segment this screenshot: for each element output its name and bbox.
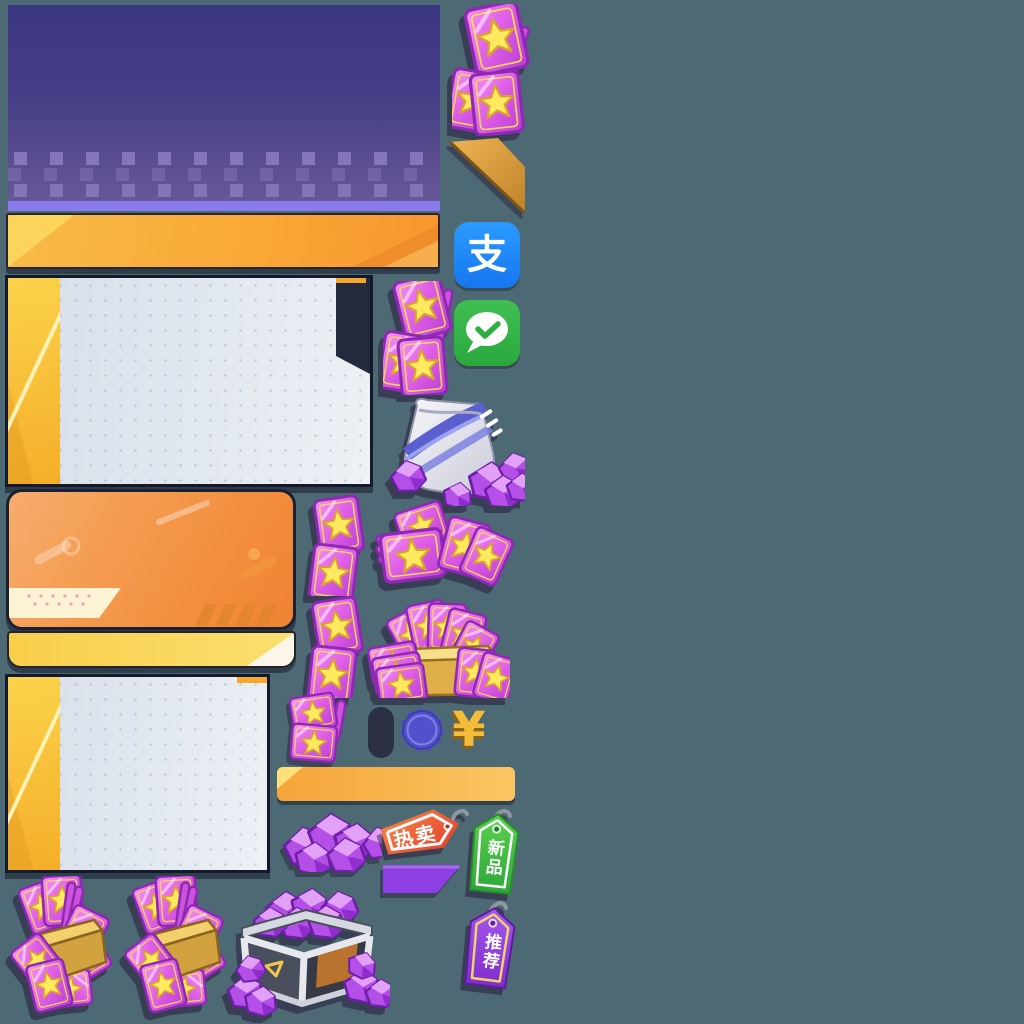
ticket-pile-icon <box>372 498 514 598</box>
alipay-icon[interactable]: 支 <box>454 222 520 288</box>
recommend-tag: 推荐 <box>458 892 524 996</box>
wechat-pay-icon[interactable] <box>454 300 520 366</box>
sale-card-decor <box>9 492 293 627</box>
yuan-symbol: ¥ <box>448 703 490 757</box>
card-yellow-stripe <box>8 278 60 484</box>
sprite-atlas-canvas: 支 <box>0 0 1024 1024</box>
wechat-bubble-icon <box>454 300 520 366</box>
indigo-coin-icon <box>400 705 446 755</box>
yellow-bar-triangle <box>9 633 294 666</box>
orange-banner-button <box>6 213 440 269</box>
promo-panel-lavender-strip <box>8 201 440 211</box>
gem-pouch-icon <box>383 396 525 506</box>
orange-bar-corner <box>277 767 307 791</box>
orange-bar-button <box>277 767 515 801</box>
card-corner-notch <box>336 278 370 378</box>
sale-card-orange <box>6 489 296 630</box>
hot-sale-tag: 热卖 <box>379 806 471 868</box>
card-top-tab <box>237 677 267 683</box>
new-item-tag: 新品 <box>464 804 526 900</box>
alipay-glyph: 支 <box>467 235 507 275</box>
gem-crate-icon <box>226 884 390 1016</box>
banner-corner-decor <box>8 215 438 267</box>
promo-banner-panel <box>8 5 440 202</box>
gold-corner-ribbon-icon <box>448 136 528 218</box>
ticket-bundle-icon <box>6 876 126 1018</box>
new-item-tag-label: 新品 <box>484 839 506 878</box>
yellow-footer-bar <box>7 631 296 668</box>
content-card-small <box>5 674 270 873</box>
purple-parallelogram-icon <box>381 862 465 896</box>
ticket-pile-gold-box-icon <box>366 594 510 698</box>
navy-capsule-icon <box>368 707 394 758</box>
gem-pile-icon <box>276 806 382 872</box>
content-card-large <box>5 275 373 487</box>
ticket-stack-icon <box>383 281 465 395</box>
card-yellow-stripe <box>8 677 60 870</box>
ticket-stack-top-icon <box>452 4 540 136</box>
ticket-bundle-icon <box>120 876 240 1018</box>
card-top-tab <box>336 278 366 283</box>
ticket-stack-small-icon <box>286 690 358 766</box>
